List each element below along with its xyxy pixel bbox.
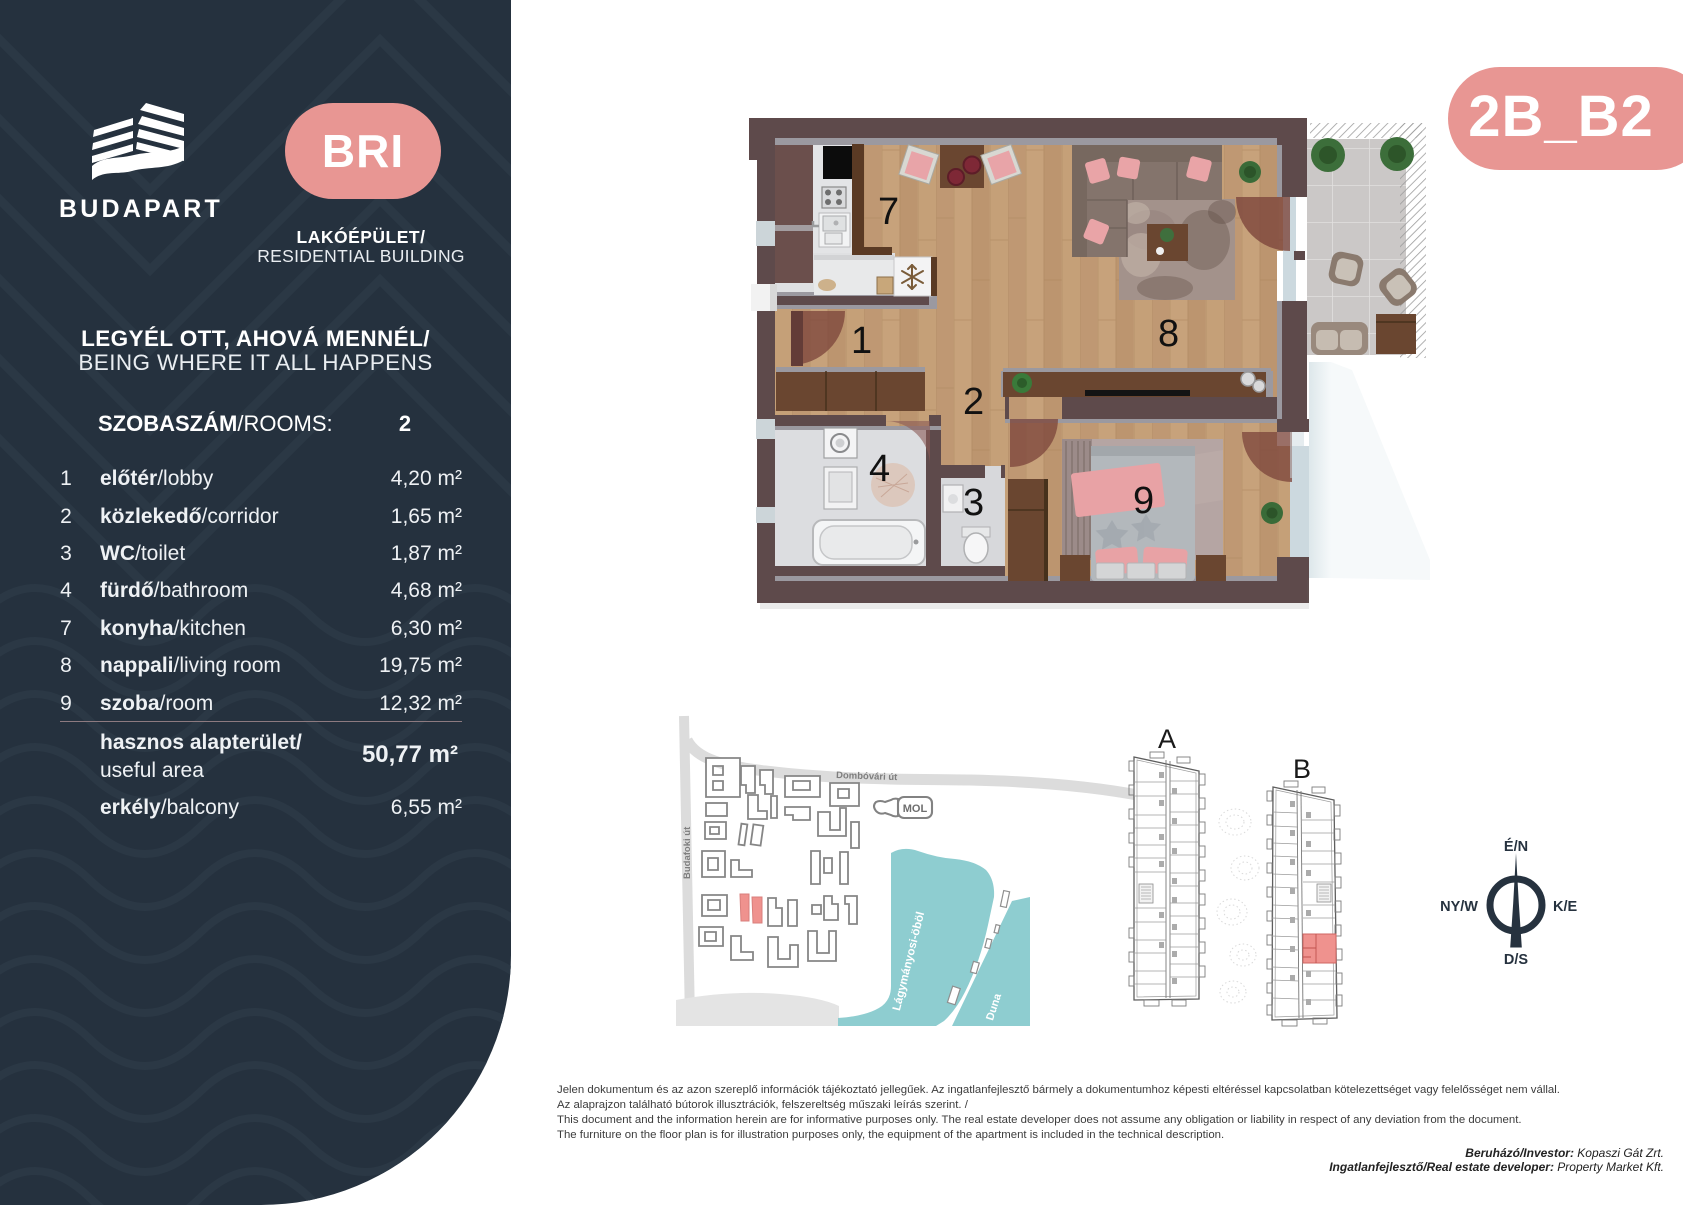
svg-text:9: 9	[1133, 480, 1154, 522]
svg-text:É/N: É/N	[1504, 838, 1528, 855]
svg-text:7: 7	[878, 191, 899, 233]
svg-text:NY/W: NY/W	[1440, 899, 1478, 915]
svg-text:Dombóvári út: Dombóvári út	[836, 770, 898, 783]
svg-text:A: A	[1158, 724, 1176, 754]
svg-text:B: B	[1293, 754, 1311, 784]
svg-text:4: 4	[869, 448, 890, 490]
svg-text:MOL: MOL	[903, 803, 928, 815]
svg-text:Budafoki út: Budafoki út	[682, 826, 693, 879]
svg-text:2: 2	[963, 381, 984, 423]
svg-text:3: 3	[963, 482, 984, 524]
svg-text:1: 1	[851, 320, 872, 362]
svg-text:8: 8	[1158, 313, 1179, 355]
svg-text:D/S: D/S	[1504, 952, 1529, 968]
svg-text:K/E: K/E	[1553, 899, 1578, 915]
